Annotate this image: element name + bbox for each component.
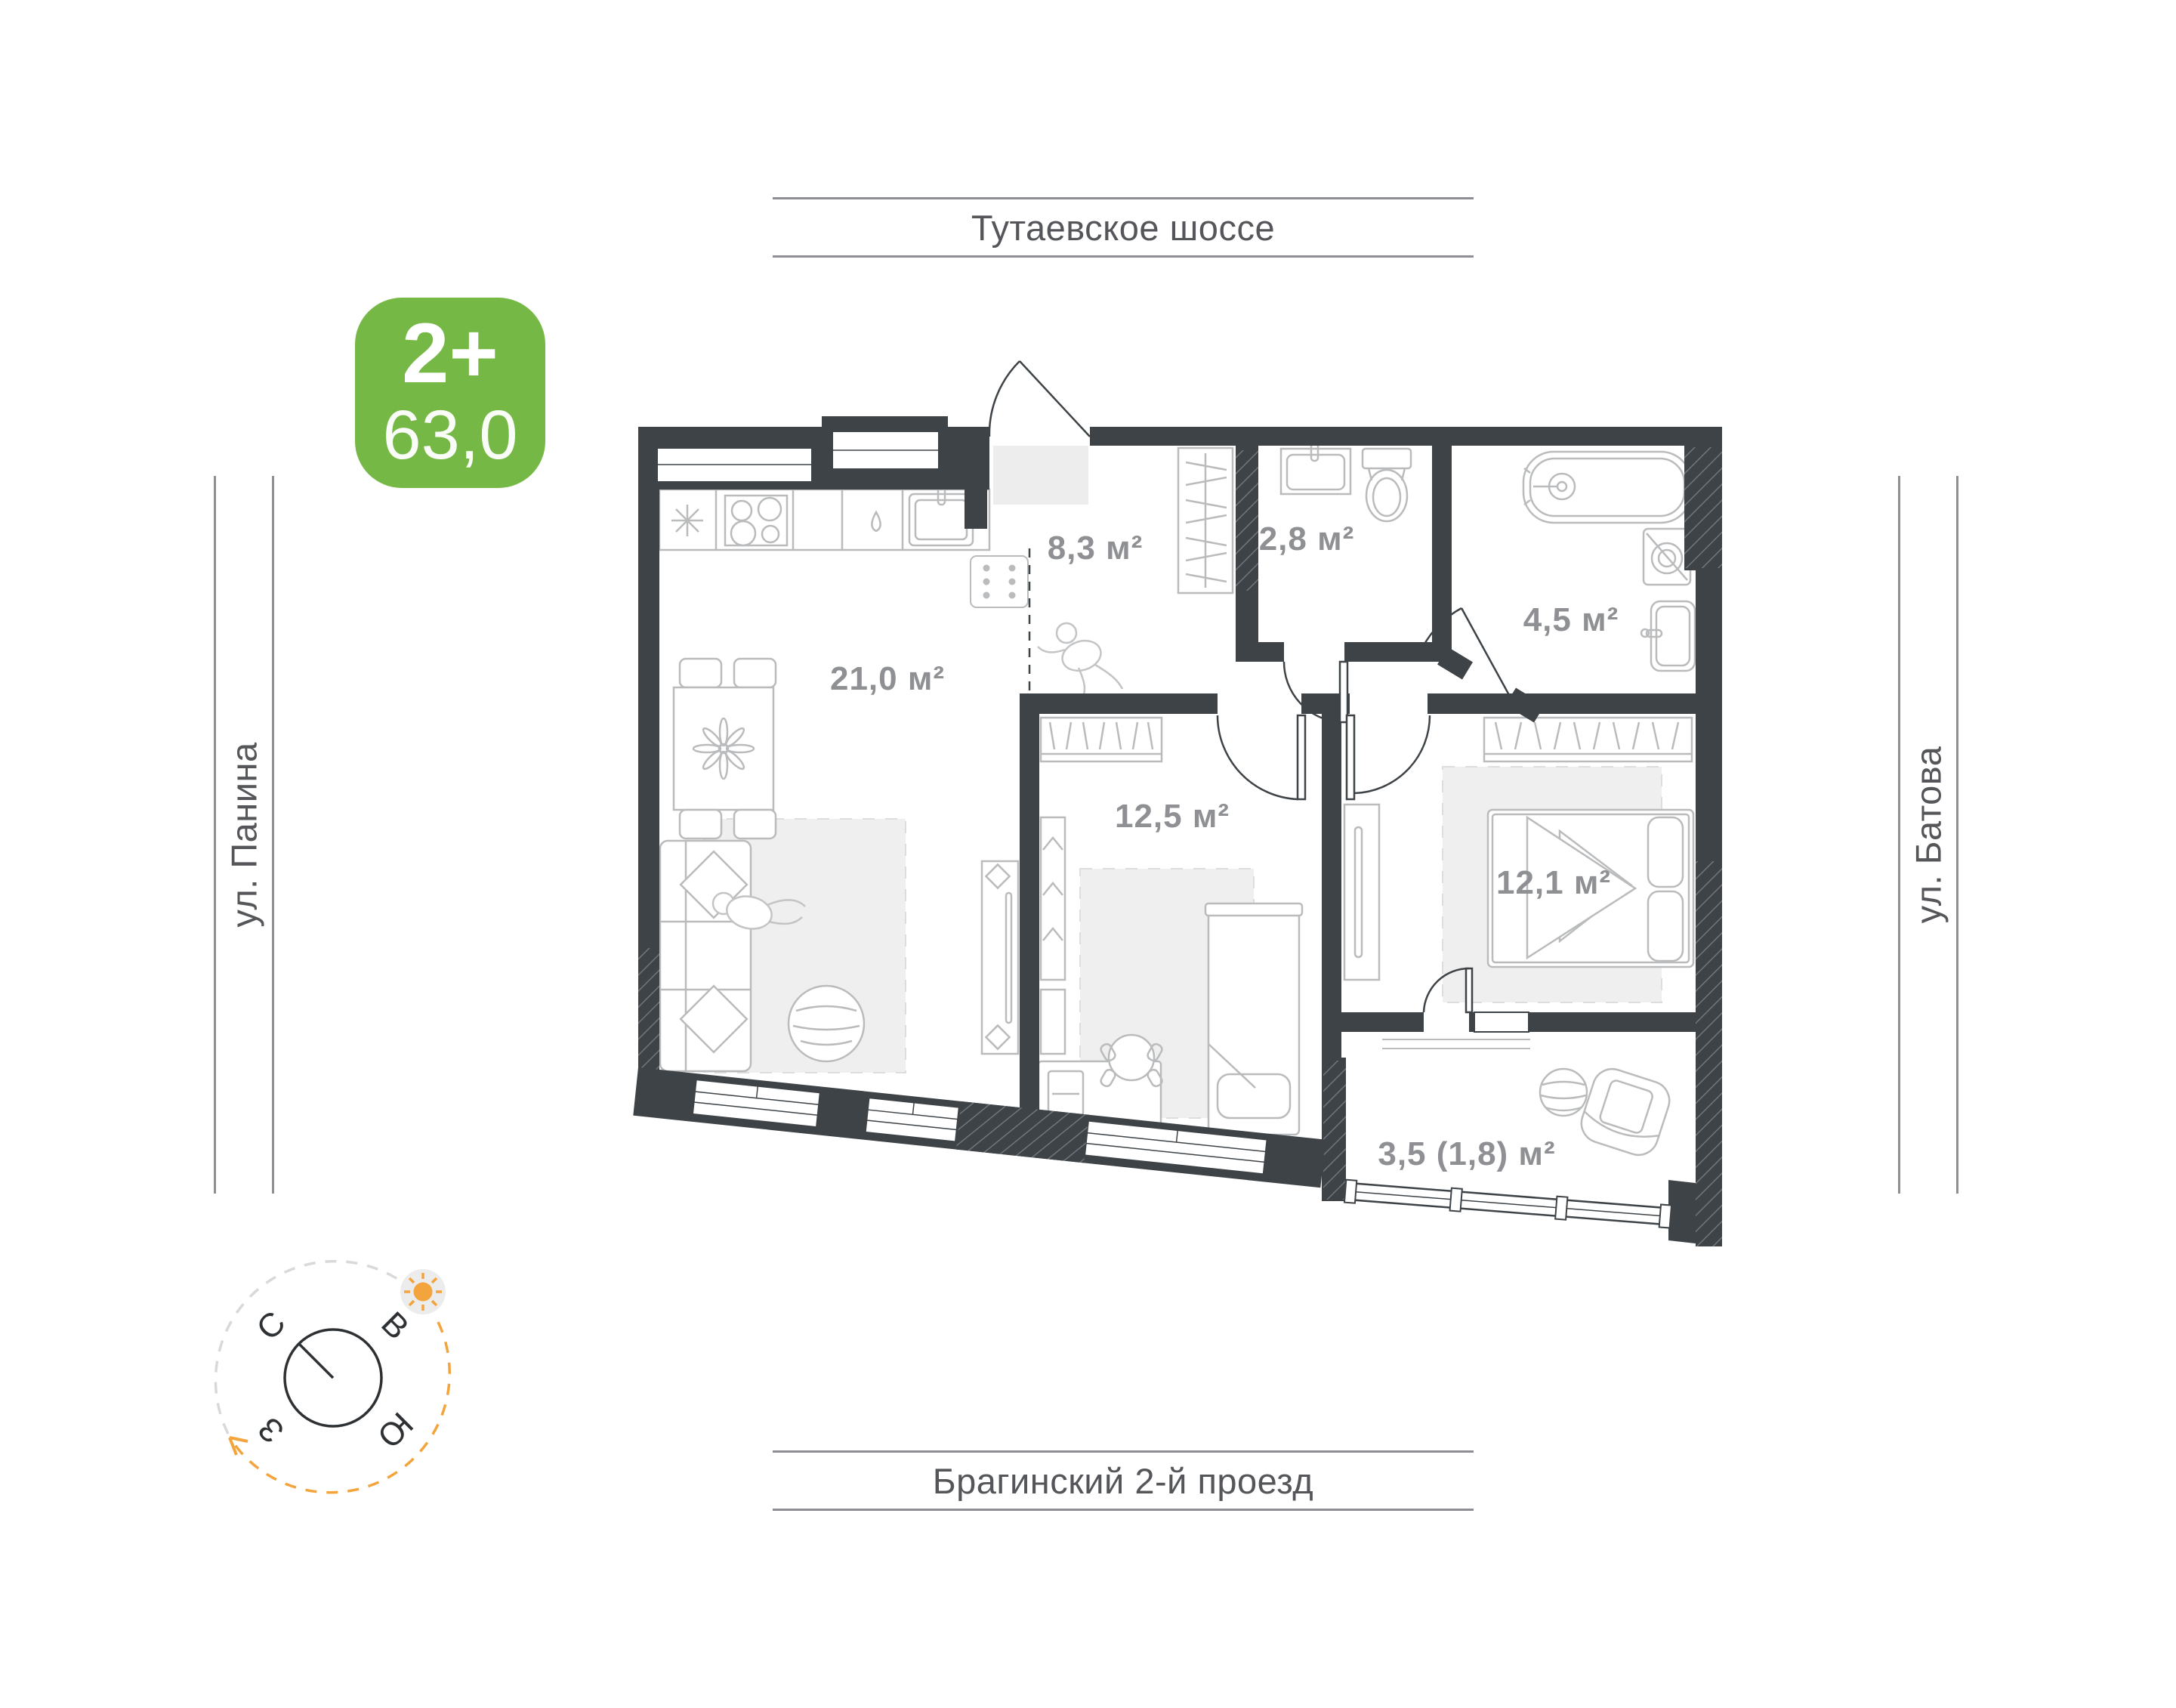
balcony-sill	[1382, 1039, 1530, 1049]
floorplan-page: Тутаевское шоссе Брагинский 2-й проезд у…	[0, 0, 2176, 1708]
room-label-balcony: 3,5 (1,8) м²	[1378, 1135, 1555, 1172]
child-shelving	[1041, 817, 1065, 1054]
room-label-bedroom: 12,1 м²	[1496, 864, 1611, 901]
bathtub-icon	[1523, 452, 1691, 523]
doormat-grid	[971, 556, 1028, 607]
coffee-table	[789, 986, 864, 1061]
child-room-door	[1218, 715, 1305, 799]
child-wardrobe	[1041, 718, 1162, 761]
single-bed	[1205, 903, 1302, 1135]
street-label-bottom: Брагинский 2-й проезд	[773, 1450, 1474, 1511]
floor-plan: 21,0 м² 8,3 м² 2,8 м² 4,5 м² 12,5 м² 12,…	[627, 325, 1790, 1450]
bedroom-balcony-window	[1474, 1012, 1529, 1032]
compass: С В Ю З	[206, 1252, 463, 1509]
fridge-icon	[671, 505, 703, 536]
compass-letter-west: З	[251, 1410, 291, 1450]
person-hall-icon	[1038, 623, 1122, 696]
street-label-top: Тутаевское шоссе	[773, 197, 1474, 258]
street-name-top: Тутаевское шоссе	[971, 207, 1275, 249]
sun-icon	[400, 1269, 446, 1314]
apartment-badge: 2+ 63,0	[355, 298, 545, 488]
compass-letter-south: Ю	[370, 1405, 420, 1455]
compass-letter-east: В	[374, 1305, 415, 1346]
room-label-hallway: 8,3 м²	[1048, 530, 1144, 567]
stove-icon	[725, 496, 787, 545]
bedroom-dresser	[1344, 805, 1379, 980]
balcony-glazing	[1344, 1180, 1671, 1228]
badge-area-value: 63,0	[382, 400, 517, 470]
balcony-armchair	[1576, 1064, 1674, 1160]
room-label-wc: 2,8 м²	[1259, 520, 1355, 557]
room-label-child-bedroom: 12,5 м²	[1115, 798, 1230, 835]
tv-stand	[982, 861, 1018, 1054]
street-name-right: ул. Батова	[1908, 746, 1949, 924]
street-label-right: ул. Батова	[1898, 476, 1958, 1194]
compass-arrow	[230, 1438, 248, 1455]
washing-machine-icon	[1644, 529, 1690, 585]
badge-rooms-label: 2+	[402, 311, 498, 396]
room-label-bathroom: 4,5 м²	[1523, 601, 1619, 638]
wc-sink-icon	[1281, 443, 1350, 494]
street-label-left: ул. Панина	[214, 476, 274, 1194]
bedroom-door	[1347, 715, 1430, 799]
street-name-left: ул. Панина	[224, 742, 265, 927]
sofa	[660, 841, 751, 1071]
entrance-door	[989, 361, 1090, 437]
hall-wardrobe	[1178, 448, 1233, 593]
dining-set	[674, 659, 776, 839]
bath-sink-icon	[1641, 601, 1695, 671]
balcony-ball	[1540, 1069, 1587, 1116]
street-name-bottom: Брагинский 2-й проезд	[933, 1460, 1313, 1502]
compass-letter-north: С	[249, 1304, 292, 1347]
room-label-kitchen-living: 21,0 м²	[830, 660, 945, 697]
toilet-icon	[1363, 449, 1411, 521]
bedroom-wardrobe	[1484, 718, 1692, 761]
